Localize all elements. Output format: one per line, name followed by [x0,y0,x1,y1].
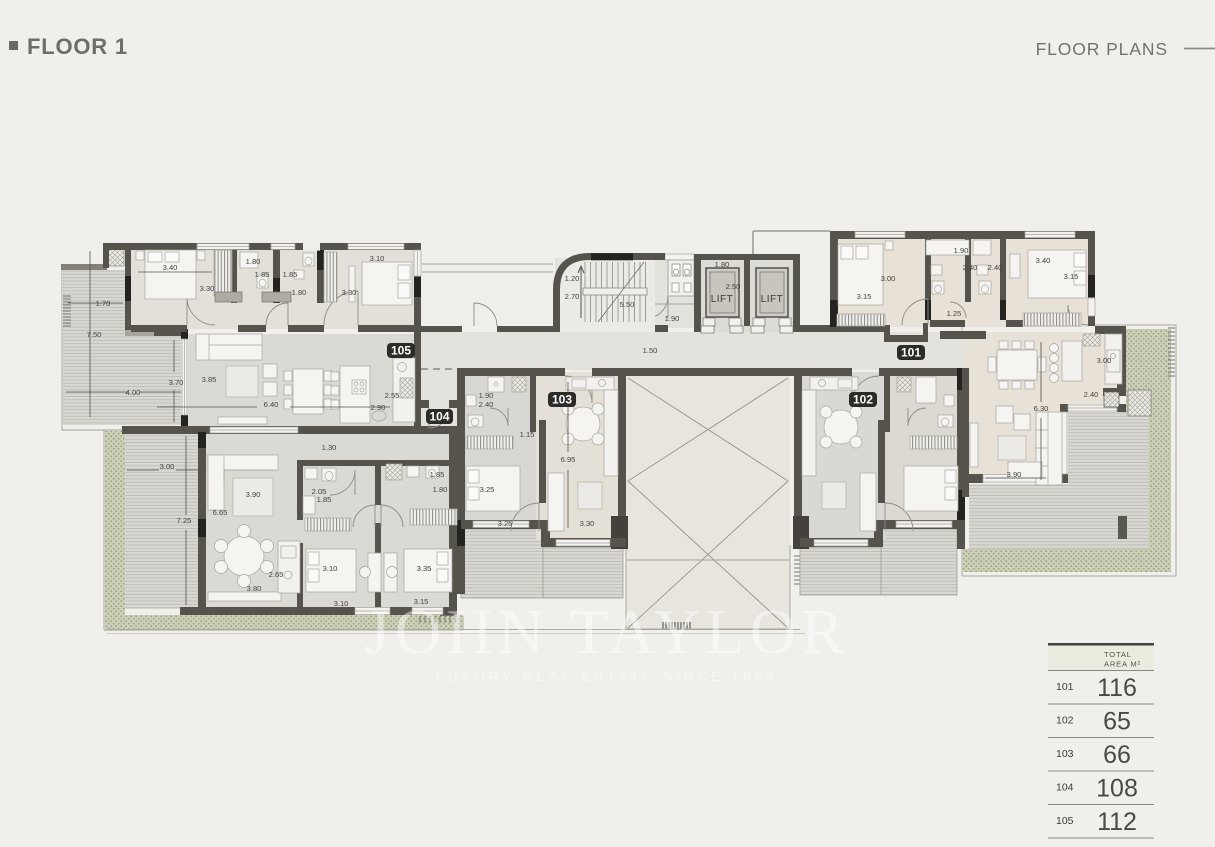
svg-text:6.40: 6.40 [264,400,279,409]
svg-text:6.95: 6.95 [561,455,576,464]
svg-text:6.65: 6.65 [213,508,228,517]
svg-text:101: 101 [1056,681,1074,693]
svg-text:102: 102 [1056,715,1074,727]
svg-text:6.30: 6.30 [1034,404,1049,413]
svg-text:3.15: 3.15 [857,292,872,301]
svg-text:3.70: 3.70 [169,378,184,387]
svg-text:1.85: 1.85 [430,470,445,479]
svg-text:1.90: 1.90 [665,314,680,323]
svg-text:112: 112 [1097,808,1137,836]
svg-text:5.50: 5.50 [620,300,635,309]
svg-text:3.85: 3.85 [202,375,217,384]
svg-text:2.50: 2.50 [726,282,741,291]
svg-text:3.00: 3.00 [1097,356,1112,365]
svg-text:3.30: 3.30 [342,288,357,297]
svg-text:3.30: 3.30 [580,519,595,528]
svg-text:7.25: 7.25 [177,516,192,525]
svg-text:3.40: 3.40 [1036,256,1051,265]
svg-text:2.40: 2.40 [963,263,978,272]
svg-text:4.00: 4.00 [126,388,141,397]
svg-text:LUXURY REAL ESTATE SINCE 1864: LUXURY REAL ESTATE SINCE 1864 [436,668,778,684]
svg-text:1.85: 1.85 [255,270,270,279]
svg-text:FLOOR 1: FLOOR 1 [27,34,128,59]
svg-text:1.25: 1.25 [947,309,962,318]
svg-text:65: 65 [1103,708,1131,736]
svg-text:3.30: 3.30 [200,284,215,293]
svg-text:3.10: 3.10 [323,564,338,573]
svg-text:66: 66 [1103,741,1131,769]
svg-text:1.70: 1.70 [96,299,111,308]
svg-text:1.20: 1.20 [565,274,580,283]
svg-text:3.40: 3.40 [163,263,178,272]
svg-text:102: 102 [853,393,873,407]
svg-text:105: 105 [391,344,411,358]
svg-text:3.25: 3.25 [480,485,495,494]
svg-text:LIFT: LIFT [761,294,784,305]
svg-text:FLOOR PLANS: FLOOR PLANS [1036,39,1168,59]
svg-text:2.70: 2.70 [565,292,580,301]
svg-text:3.15: 3.15 [1064,272,1079,281]
svg-text:2.40: 2.40 [988,263,1003,272]
svg-text:103: 103 [1056,748,1074,760]
svg-text:2.65: 2.65 [269,570,284,579]
svg-text:108: 108 [1096,775,1138,803]
svg-text:3.90: 3.90 [246,490,261,499]
svg-text:3.00: 3.00 [881,274,896,283]
svg-text:2.40: 2.40 [479,400,494,409]
svg-text:1.80: 1.80 [715,260,730,269]
svg-text:1.80: 1.80 [292,288,307,297]
svg-text:1.85: 1.85 [317,495,332,504]
svg-text:1.90: 1.90 [479,391,494,400]
svg-text:116: 116 [1097,674,1137,702]
svg-text:2.40: 2.40 [1084,390,1099,399]
svg-text:7.50: 7.50 [87,330,102,339]
svg-text:3.00: 3.00 [160,462,175,471]
svg-text:TOTAL: TOTAL [1104,650,1132,659]
svg-text:1.50: 1.50 [643,346,658,355]
svg-text:101: 101 [901,346,921,360]
svg-text:103: 103 [552,393,572,407]
svg-text:1.80: 1.80 [433,485,448,494]
svg-text:3.10: 3.10 [334,599,349,608]
svg-text:1.80: 1.80 [246,257,261,266]
svg-text:104: 104 [429,410,449,424]
svg-text:3.80: 3.80 [247,584,262,593]
svg-text:104: 104 [1056,782,1074,794]
svg-text:3.35: 3.35 [417,564,432,573]
svg-text:LIFT: LIFT [711,294,734,305]
svg-text:2.55: 2.55 [385,391,400,400]
svg-text:1.30: 1.30 [322,443,337,452]
svg-text:3.10: 3.10 [370,254,385,263]
svg-text:AREA M²: AREA M² [1104,660,1141,669]
svg-text:3.25: 3.25 [498,519,513,528]
svg-text:1.15: 1.15 [520,430,535,439]
svg-text:3.90: 3.90 [1007,470,1022,479]
svg-text:JOHN TAYLOR: JOHN TAYLOR [365,596,849,667]
svg-text:1.90: 1.90 [954,246,969,255]
svg-text:1.85: 1.85 [283,270,298,279]
svg-text:105: 105 [1056,815,1074,827]
svg-text:2.90: 2.90 [371,403,386,412]
